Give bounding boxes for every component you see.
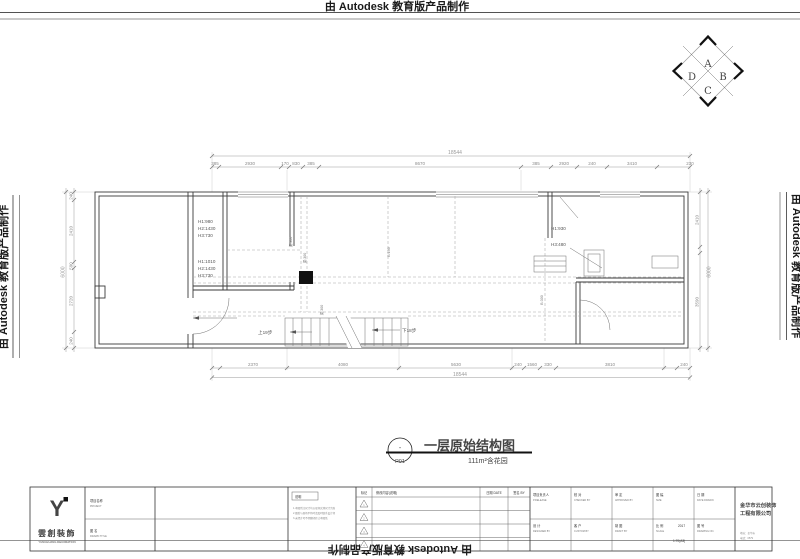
room2-h1: H1:1010 <box>198 259 216 264</box>
field-r2c4-cn: 比 例 <box>656 523 663 528</box>
dim-top-8: 240 <box>588 161 596 166</box>
beam-label-1: 梁:300 <box>288 237 293 248</box>
drawing-label-en: DRAWN TITLE <box>90 535 107 538</box>
field-r1c1-en: P.RELEASE <box>533 499 547 502</box>
project-label-en: PROJECT <box>90 505 102 508</box>
room1-h2: H2:1430 <box>198 226 216 231</box>
rev-content-header: 修改内容(说明) <box>376 490 397 495</box>
notes-line-1: 1.本图所注尺寸均以现场实测尺寸为准 <box>293 506 336 510</box>
company-info: 金华市云创装饰 工程有限公司 地址：金华市 电话：0579 <box>739 501 776 540</box>
rev-by-header: 签名 BY <box>513 490 525 495</box>
dim-top-0: 385 <box>211 161 219 166</box>
field-r1c5-en: DATE DRAWN <box>697 499 714 502</box>
rightwall-h3: H3:480 <box>551 242 566 247</box>
field-r2c3-en: DRAFT BY <box>615 530 628 533</box>
notes-section: 说明 1.本图所注尺寸均以现场实测尺寸为准 2.图纸与现场不符时请及时联系设计师… <box>292 492 336 520</box>
dim-bottom-4: 1560 <box>527 362 538 367</box>
field-r1c5-cn: 日 期 <box>697 492 704 497</box>
compass-letter-d: D <box>688 72 696 83</box>
watermark-right: 由 Autodesk 教育版产品制作 <box>780 192 800 340</box>
title-bubble-code: P01 <box>395 459 405 465</box>
watermark-top-text: 由 Autodesk 教育版产品制作 <box>325 0 469 13</box>
windows <box>238 191 640 219</box>
beam-label-2: 梁:300 <box>302 253 307 264</box>
company-logo: Y 雲創裝飾 YUNCHUANG DECORATION <box>38 496 76 544</box>
rev-row-1: 1 <box>363 504 365 507</box>
dim-top-10: 230 <box>686 161 694 166</box>
field-r1c3-en: APPROVED BY <box>615 499 633 502</box>
drawing-label: 图 名 <box>90 528 97 533</box>
dim-bottom-2: 5630 <box>451 362 462 367</box>
rev-mark-header: 标记 <box>361 490 368 495</box>
dim-top-2: 170 <box>281 161 289 166</box>
project-label: 项目名称 <box>90 498 104 503</box>
dim-top-5: 8670 <box>415 161 426 166</box>
title-block: Y 雲創裝飾 YUNCHUANG DECORATION 项目名称 PROJECT… <box>30 487 776 551</box>
company-phone: 电话：0579 <box>740 536 754 540</box>
dim-top-6: 385 <box>532 161 540 166</box>
notes-line-3: 3.未经许可不得翻印转让本图纸 <box>293 516 328 520</box>
dim-bottom-7: 240 <box>680 362 688 367</box>
dim-bottom-5: 330 <box>544 362 552 367</box>
dim-left-total: 6000 <box>61 266 67 277</box>
company-address: 地址：金华市 <box>740 531 756 535</box>
title-name: 一层原始结构图 <box>424 438 515 453</box>
field-r2c5-en: DRAWING NO. <box>697 530 714 533</box>
dim-bottom: 2370 4080 5630 240 1560 330 3810 240 185… <box>210 362 692 380</box>
logo-mark-icon: Y <box>50 496 65 521</box>
dim-top-4: 385 <box>307 161 315 166</box>
watermark-bottom-text: 由 Autodesk 教育版产品制作 <box>328 543 472 557</box>
company-name-1: 金华市云创装饰 <box>739 501 776 509</box>
cad-sheet: 由 Autodesk 教育版产品制作 由 Autodesk 教育版产品制作 由 … <box>0 0 800 559</box>
dim-bottom-total: 18544 <box>453 372 467 378</box>
dim-top-9: 3410 <box>627 161 638 166</box>
room2-h2: H2:1430 <box>198 266 216 271</box>
beam-label-5: B:300 <box>540 295 544 304</box>
field-scale-value: 1:70(A3) <box>673 539 685 543</box>
dim-left-2: 590 <box>69 262 74 270</box>
beam-label-3: B:190 <box>387 247 391 256</box>
fixtures <box>534 250 678 276</box>
logo-en: YUNCHUANG DECORATION <box>38 540 75 544</box>
beam-dashed-lines <box>193 196 684 344</box>
watermark-left-text: 由 Autodesk 教育版产品制作 <box>0 205 10 349</box>
stairs-down-label: 下18步 <box>402 328 417 334</box>
signature-fields: 项目负责人 P.RELEASE 校 对 CHECKED BY 审 定 APPRO… <box>533 492 714 543</box>
dim-top: 18544 385 2930 170 830 385 8670 385 2920… <box>210 150 694 169</box>
dim-bottom-6: 3810 <box>605 362 616 367</box>
field-r2c2-cn: 客 户 <box>574 523 581 528</box>
compass-letter-c: C <box>704 86 712 97</box>
dim-top-total: 18544 <box>448 150 462 156</box>
dimension-extension-lines <box>62 152 712 381</box>
compass-icon: A B C D <box>674 37 743 106</box>
field-r1c3-cn: 审 定 <box>615 492 623 497</box>
plan-annotations: H1:980 H2:1430 H3:730 H1:1010 H2:1430 H3… <box>198 219 602 315</box>
stairs-up-label: 上19步 <box>258 329 273 336</box>
dim-top-3: 830 <box>292 161 300 166</box>
drawing-title: - P01 一层原始结构图 111m²含花园 <box>386 438 532 465</box>
dim-bottom-0: 2370 <box>248 362 259 367</box>
dim-right-0: 2410 <box>695 214 700 225</box>
field-scale-year: 2017 <box>678 524 685 528</box>
title-area: 111m²含花园 <box>468 456 508 465</box>
field-r2c1-en: DESIGNED BY <box>533 530 550 533</box>
room2-h3: H3:730 <box>198 273 213 278</box>
room1-h1: H1:980 <box>198 219 213 224</box>
field-r1c2-en: CHECKED BY <box>574 499 591 502</box>
structural-column <box>299 271 313 284</box>
floor-plan-walls <box>95 192 688 348</box>
beam-label-4: 梁:300 <box>319 305 324 316</box>
company-name-2: 工程有限公司 <box>740 509 771 517</box>
rightwall-h1: H1:930 <box>551 226 566 231</box>
logo-cn: 雲創裝飾 <box>38 528 76 538</box>
field-r2c2-en: CUSTOM BY <box>574 530 589 533</box>
room1-h3: H3:730 <box>198 233 213 238</box>
field-r1c4-cn: 图 幅 <box>656 492 664 497</box>
stairs: 上19步 下18步 <box>258 316 417 348</box>
dim-left-0: 240 <box>69 192 74 200</box>
watermark-top: 由 Autodesk 教育版产品制作 <box>0 0 800 19</box>
compass-letter-b: B <box>719 72 726 83</box>
compass-letter-a: A <box>703 59 712 70</box>
rev-row-3: 3 <box>363 531 365 534</box>
dim-left-1: 2410 <box>69 225 74 236</box>
field-r2c1-cn: 设 计 <box>533 523 541 528</box>
dim-left-3: 2720 <box>69 295 74 306</box>
field-r2c4-en: SCALE <box>656 530 665 533</box>
dim-top-7: 2920 <box>559 161 570 166</box>
field-r1c2-cn: 校 对 <box>574 492 582 497</box>
field-r1c1-cn: 项目负责人 <box>533 492 550 497</box>
dim-bottom-3: 240 <box>514 362 522 367</box>
field-r1c4-en: SIZE <box>656 499 662 502</box>
field-r2c3-cn: 制 图 <box>615 523 622 528</box>
field-r2c5-cn: 图 号 <box>697 523 704 528</box>
dim-right: 2410 3590 6000 <box>695 188 713 352</box>
watermark-left: 由 Autodesk 教育版产品制作 <box>0 195 20 358</box>
dim-top-1: 2930 <box>245 161 256 166</box>
dim-right-total: 6000 <box>707 266 713 277</box>
dim-left-4: 240 <box>69 337 74 345</box>
watermark-right-text: 由 Autodesk 教育版产品制作 <box>790 194 800 338</box>
dim-bottom-1: 4080 <box>338 362 349 367</box>
revision-table: 标记 修改内容(说明) 日期 DATE 签名 BY 1 2 3 4 <box>356 487 530 551</box>
notes-title: 说明 <box>295 494 301 499</box>
dim-left: 240 2410 590 2720 240 6000 <box>61 188 77 352</box>
notes-line-2: 2.图纸与现场不符时请及时联系设计师 <box>293 511 336 515</box>
dim-right-1: 3590 <box>695 296 700 307</box>
rev-row-2: 2 <box>363 518 365 521</box>
rev-date-header: 日期 DATE <box>486 490 502 495</box>
title-bubble-top: - <box>399 445 402 452</box>
